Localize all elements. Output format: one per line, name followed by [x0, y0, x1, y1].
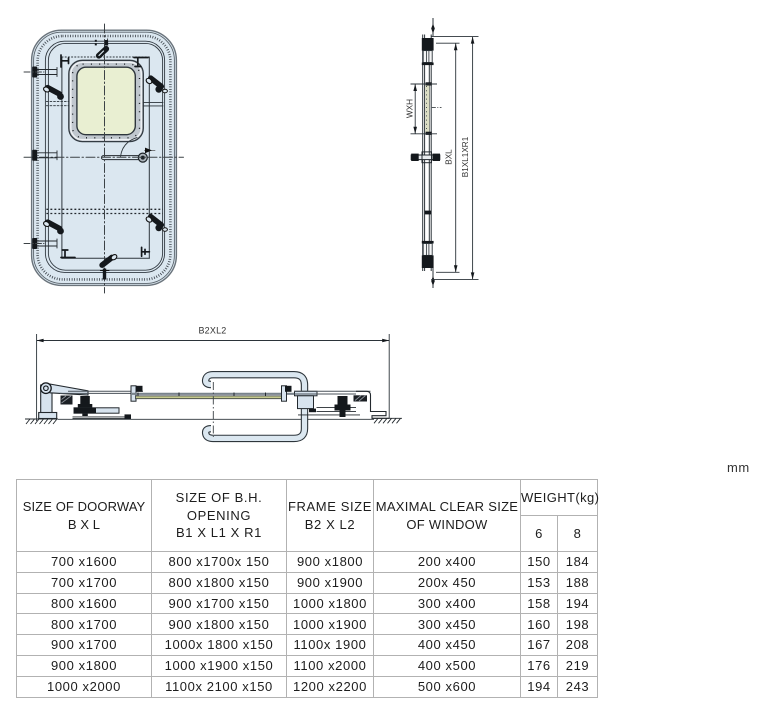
svg-text:WXH: WXH: [406, 99, 415, 118]
svg-text:B2XL2: B2XL2: [198, 326, 226, 336]
svg-text:B1XL1XR1: B1XL1XR1: [461, 136, 470, 177]
svg-text:BXL: BXL: [445, 149, 454, 165]
